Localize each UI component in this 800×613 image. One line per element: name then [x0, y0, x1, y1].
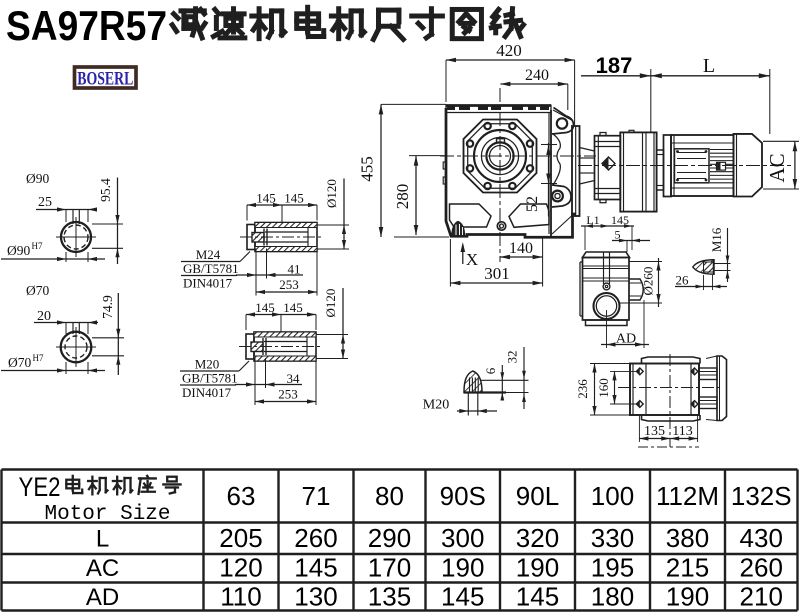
svg-text:M20: M20 [195, 357, 220, 372]
svg-text:BOSERL: BOSERL [77, 70, 133, 90]
svg-text:260: 260 [294, 523, 337, 553]
svg-text:GB/T5781: GB/T5781 [183, 261, 239, 276]
svg-text:280: 280 [393, 184, 412, 210]
svg-text:290: 290 [368, 523, 411, 553]
svg-text:DIN4017: DIN4017 [183, 276, 233, 291]
svg-text:L: L [703, 55, 715, 77]
svg-text:Ø120: Ø120 [323, 289, 338, 318]
svg-text:120: 120 [219, 553, 262, 583]
svg-text:Ø260: Ø260 [641, 267, 656, 296]
svg-text:GB/T5781: GB/T5781 [182, 371, 238, 386]
svg-text:145: 145 [441, 582, 484, 612]
svg-text:253: 253 [278, 387, 298, 402]
svg-text:260: 260 [740, 553, 783, 583]
svg-text:145: 145 [283, 300, 303, 315]
svg-text:236: 236 [575, 379, 590, 399]
svg-text:160: 160 [596, 378, 611, 398]
svg-text:H7: H7 [33, 353, 44, 363]
svg-text:145: 145 [516, 582, 559, 612]
svg-text:190: 190 [666, 582, 709, 612]
svg-text:90L: 90L [516, 481, 559, 511]
svg-text:190: 190 [516, 553, 559, 583]
svg-text:52: 52 [524, 196, 541, 212]
svg-text:M24: M24 [196, 247, 221, 262]
svg-text:180: 180 [591, 582, 634, 612]
svg-text:AD: AD [86, 584, 119, 611]
svg-text:L: L [96, 526, 109, 553]
svg-text:140: 140 [509, 240, 533, 257]
svg-text:420: 420 [496, 41, 522, 60]
svg-text:330: 330 [591, 523, 634, 553]
svg-text:25: 25 [38, 195, 52, 210]
svg-text:90S: 90S [440, 481, 486, 511]
svg-text:300: 300 [441, 523, 484, 553]
svg-text:34: 34 [287, 371, 301, 386]
svg-text:Ø70: Ø70 [26, 283, 49, 298]
svg-text:H7: H7 [32, 241, 43, 251]
svg-text:455: 455 [358, 156, 377, 182]
svg-text:M20: M20 [423, 398, 449, 413]
svg-text:145: 145 [294, 553, 337, 583]
svg-text:80: 80 [375, 481, 404, 511]
svg-text:253: 253 [279, 277, 299, 292]
svg-text:Ø90: Ø90 [7, 243, 30, 258]
svg-text:110: 110 [220, 582, 261, 612]
svg-text:320: 320 [516, 523, 559, 553]
svg-text:240: 240 [525, 67, 549, 84]
svg-text:SA97R57: SA97R57 [6, 2, 167, 49]
svg-text:71: 71 [302, 481, 331, 511]
svg-text:430: 430 [740, 523, 783, 553]
svg-text:M16: M16 [709, 227, 724, 252]
svg-text:74.9: 74.9 [100, 295, 115, 319]
svg-text:112M: 112M [656, 481, 719, 511]
svg-text:Ø70: Ø70 [8, 355, 31, 370]
svg-text:DIN4017: DIN4017 [182, 385, 232, 400]
svg-text:380: 380 [666, 523, 709, 553]
svg-text:210: 210 [740, 582, 783, 612]
svg-text:145: 145 [255, 300, 275, 315]
svg-text:63: 63 [227, 481, 256, 511]
svg-text:145: 145 [284, 191, 304, 206]
svg-text:6: 6 [483, 367, 498, 374]
svg-text:130: 130 [294, 582, 337, 612]
svg-text:205: 205 [219, 523, 262, 553]
svg-text:Ø120: Ø120 [324, 179, 339, 208]
svg-text:32: 32 [505, 351, 520, 364]
svg-text:195: 195 [591, 553, 634, 583]
svg-text:X: X [466, 250, 478, 269]
svg-text:187: 187 [596, 53, 633, 78]
svg-text:215: 215 [666, 553, 709, 583]
svg-text:41: 41 [288, 262, 301, 277]
svg-text:95.4: 95.4 [98, 178, 113, 202]
svg-text:135: 135 [368, 582, 411, 612]
svg-text:20: 20 [37, 309, 51, 324]
svg-text:301: 301 [484, 264, 510, 283]
svg-text:Ø90: Ø90 [26, 171, 49, 186]
svg-text:100: 100 [591, 481, 634, 511]
svg-text:YE2: YE2 [19, 472, 61, 502]
svg-text:Motor Size: Motor Size [44, 503, 170, 526]
svg-text:AC: AC [86, 555, 119, 582]
svg-text:26: 26 [676, 273, 690, 288]
svg-text:132S: 132S [731, 481, 792, 511]
svg-text:AC: AC [765, 153, 789, 182]
svg-text:170: 170 [368, 553, 411, 583]
svg-text:145: 145 [256, 191, 276, 206]
svg-text:190: 190 [441, 553, 484, 583]
